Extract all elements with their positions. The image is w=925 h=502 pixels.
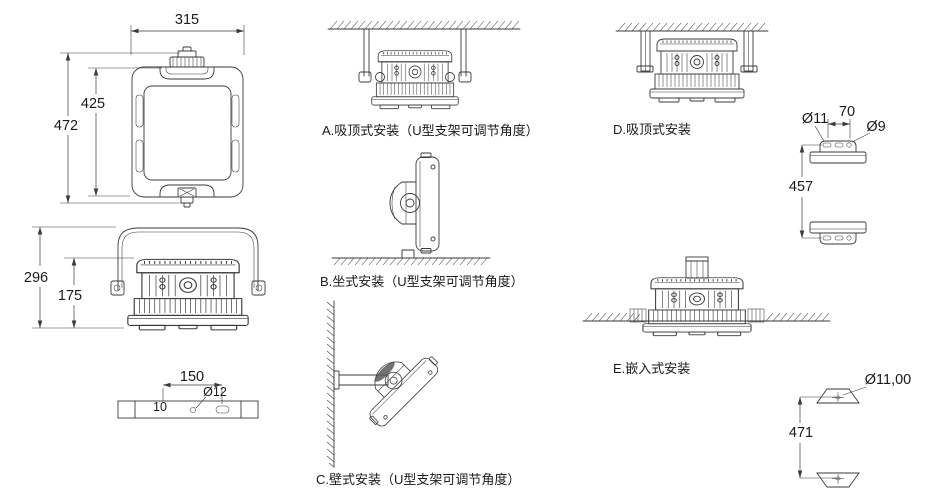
mount-a-drawing — [318, 12, 583, 117]
mount-b-label: B.坐式安装（U型支架可调节角度） — [320, 271, 524, 290]
dim-slot-label: Ø12 — [203, 385, 227, 399]
dim-height-total: 296 — [24, 270, 48, 286]
mounting-pole — [402, 250, 414, 258]
dim-pitch: 70 — [839, 104, 855, 120]
side-fins — [630, 309, 764, 322]
installation-drawing-sheet: 315 425 472 — [0, 0, 925, 502]
conduit-stub — [686, 257, 708, 278]
dim-height-outer: 472 — [54, 118, 78, 134]
top-view-drawing: 315 425 472 — [50, 6, 260, 218]
slot-hole — [216, 406, 229, 413]
mount-d-label: D.吸顶式安装 — [613, 119, 691, 138]
dim-hole-left: Ø11 — [802, 111, 828, 127]
ceiling-brackets — [637, 31, 757, 72]
dim-width: 315 — [175, 12, 199, 28]
dim-span-471: 471 — [789, 425, 813, 441]
dim-height-body: 175 — [58, 288, 82, 304]
fixture-front-view — [372, 51, 458, 109]
fixture-plan-outline — [132, 47, 243, 207]
bracket-top — [810, 141, 866, 163]
dim-hole-label: 10 — [153, 400, 167, 414]
mount-e-label: E.嵌入式安装 — [613, 358, 690, 377]
ground-hatch — [332, 258, 490, 265]
mount-c-drawing — [315, 293, 565, 473]
ceiling-hatch — [328, 21, 520, 29]
dim-bar-length: 150 — [180, 369, 204, 385]
dim-foot-hole: Ø11,00 — [865, 372, 912, 388]
bracket-detail-upper: Ø11 70 Ø9 457 — [782, 98, 925, 250]
dim-span-457: 457 — [789, 179, 813, 195]
wall-hatch — [327, 301, 334, 467]
fixture-front-view — [643, 278, 751, 336]
foot-bottom — [817, 473, 859, 487]
dim-hole-right: Ø9 — [866, 119, 885, 135]
small-hole — [190, 407, 195, 412]
fixture-front-view — [650, 39, 744, 102]
fixture-side-tilted — [350, 337, 443, 430]
bracket-bottom — [810, 222, 866, 244]
panel-hatch — [583, 313, 830, 321]
mount-b-drawing — [318, 148, 568, 270]
mount-a-label: A.吸顶式安装（U型支架可调节角度） — [322, 120, 539, 139]
bracket-detail-lower: Ø11,00 471 — [785, 362, 925, 502]
ceiling-hatch — [616, 23, 768, 31]
mount-d-drawing — [605, 14, 785, 117]
fixture-side-view — [390, 153, 439, 253]
fixture-front-view — [128, 259, 248, 330]
foot-top — [817, 389, 859, 403]
u-bracket-handle — [111, 228, 265, 295]
front-view-drawing: 296 175 — [20, 220, 272, 338]
mount-c-label: C.壁式安装（U型支架可调节角度） — [316, 469, 520, 488]
mount-e-drawing — [578, 250, 843, 350]
mount-bar-drawing: 150 Ø12 10 — [110, 368, 270, 426]
dim-height-inner: 425 — [81, 96, 105, 112]
